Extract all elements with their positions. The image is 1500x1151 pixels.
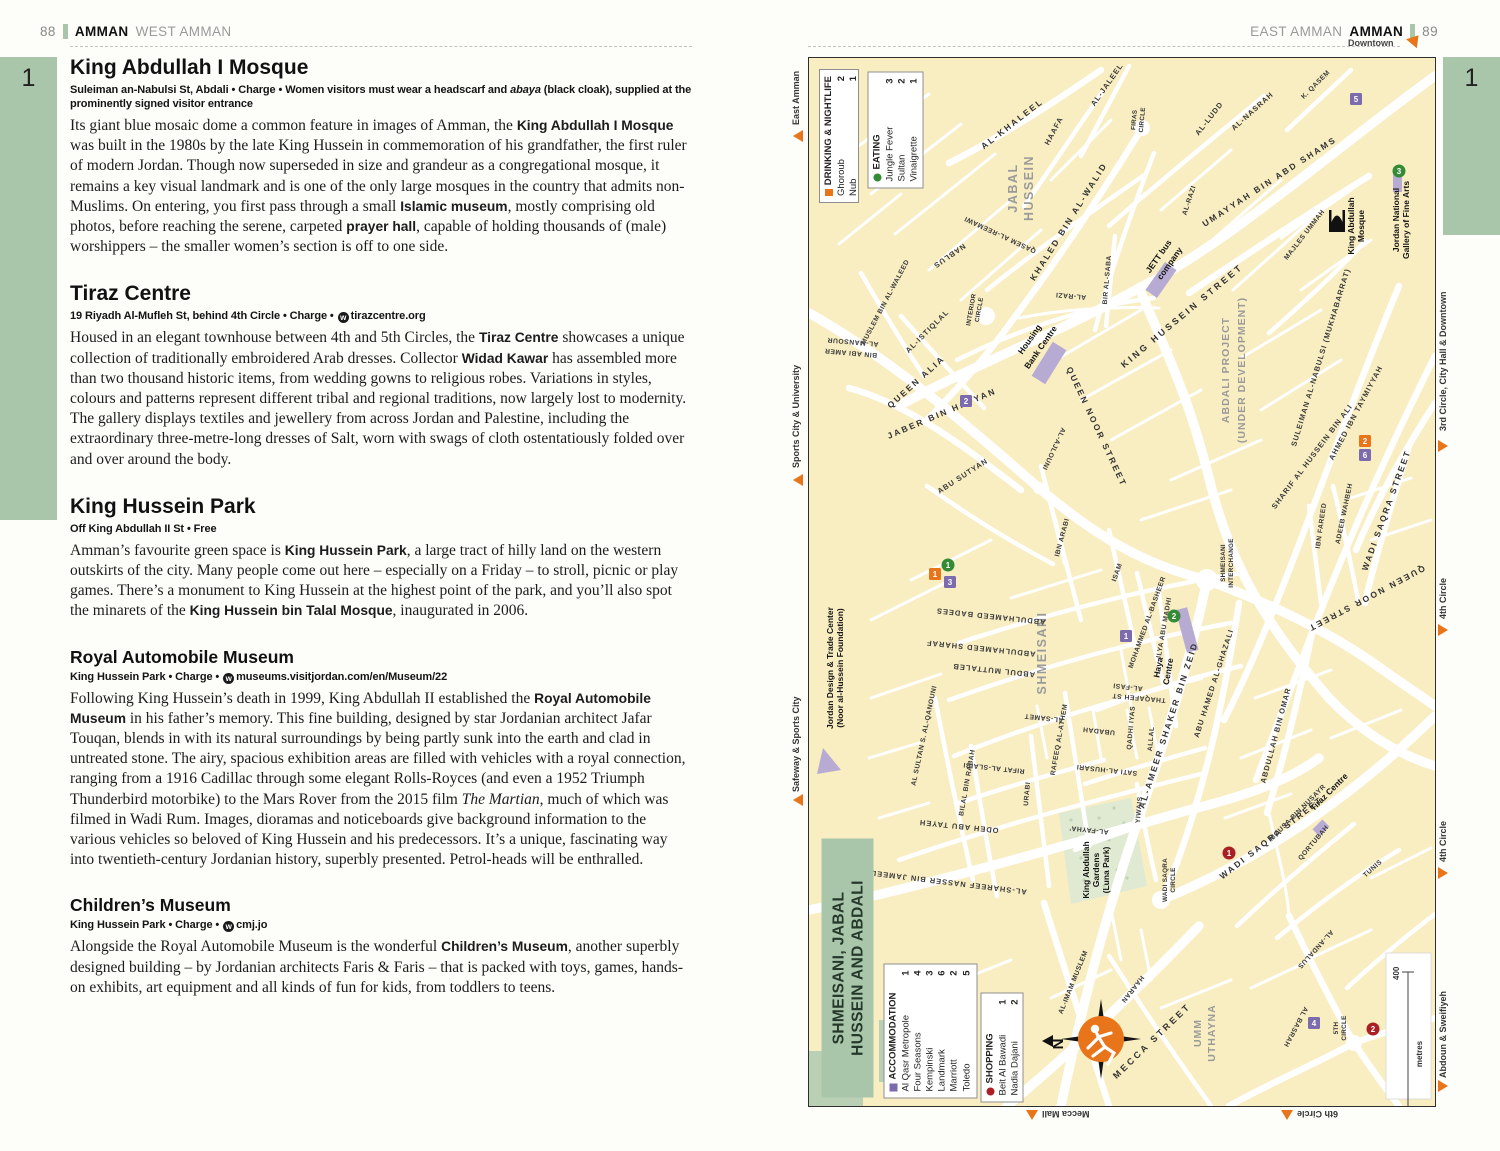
book-spread: 88 AMMAN WEST AMMAN EAST AMMAN AMMAN 89 … — [0, 0, 1500, 1151]
practical-info: King Hussein Park • Charge • wmuseums.vi… — [70, 670, 692, 684]
svg-text:1: 1 — [1227, 849, 1232, 858]
svg-text:Mosque: Mosque — [1356, 210, 1366, 242]
marker-eating: 1 — [942, 559, 955, 572]
drinking-swatch-icon — [825, 189, 833, 196]
article-heading: Royal Automobile Museum — [70, 647, 692, 668]
svg-text:400: 400 — [1392, 966, 1401, 980]
svg-text:4: 4 — [1312, 1019, 1317, 1028]
marker-accommodation: 5 — [1350, 93, 1362, 105]
direction-arrow-icon — [1438, 1080, 1448, 1092]
svg-text:(Luna Park): (Luna Park) — [1101, 846, 1111, 893]
marker-accommodation: 3 — [944, 576, 956, 588]
svg-text:Jordan Design & Trade Center: Jordan Design & Trade Center — [825, 606, 835, 729]
accommodation-swatch-icon — [890, 1084, 898, 1092]
svg-text:WADI SAQRA: WADI SAQRA — [1162, 858, 1169, 902]
legend-shopping: SHOPPING Beit Al Bawadi1 Nadia Dajani2 — [981, 993, 1024, 1103]
article-body: Amman’s favourite green space is King Hu… — [70, 541, 692, 622]
edge-label-east-amman: East Amman — [791, 68, 805, 128]
marker-accommodation: 4 — [1308, 1017, 1320, 1029]
article-heading: Tiraz Centre — [70, 282, 692, 306]
svg-text:1: 1 — [946, 561, 951, 570]
website-icon: w — [223, 921, 234, 932]
header-bar-icon — [63, 24, 68, 39]
article-body: Following King Hussein’s death in 1999, … — [70, 689, 692, 871]
website-icon: w — [223, 673, 234, 684]
svg-text:(Noor al-Hussein Foundation): (Noor al-Hussein Foundation) — [835, 608, 845, 728]
svg-text:2: 2 — [1371, 1025, 1376, 1034]
article-column: King Abdullah I Mosque Suleiman an-Nabul… — [70, 56, 692, 1023]
chapter-number: 1 — [1443, 64, 1500, 93]
chapter-number: 1 — [0, 64, 57, 93]
svg-text:UMM: UMM — [1192, 1019, 1204, 1047]
svg-text:3: 3 — [1397, 167, 1402, 176]
left-page-header: 88 AMMAN WEST AMMAN — [40, 24, 232, 39]
article-king-abdullah-mosque: King Abdullah I Mosque Suleiman an-Nabul… — [70, 56, 692, 257]
article-heading: King Abdullah I Mosque — [70, 56, 692, 80]
direction-arrow-icon — [793, 794, 803, 806]
practical-info: Suleiman an-Nabulsi St, Abdali • Charge … — [70, 83, 692, 111]
article-heading: King Hussein Park — [70, 495, 692, 519]
svg-text:INTERCHANGE: INTERCHANGE — [1228, 538, 1235, 587]
direction-arrow-icon — [793, 130, 803, 142]
marker-accommodation: 6 — [1359, 449, 1371, 461]
svg-text:SHMEISANI: SHMEISANI — [1220, 544, 1227, 582]
website-icon: w — [338, 312, 349, 323]
svg-text:Gallery of Fine Arts: Gallery of Fine Arts — [1401, 181, 1411, 259]
right-page-header: EAST AMMAN AMMAN 89 — [1150, 24, 1438, 39]
svg-text:UTHAYNA: UTHAYNA — [1206, 1004, 1218, 1061]
chapter-tab-right: 1 — [1443, 57, 1500, 235]
article-body: Its giant blue mosaic dome a common feat… — [70, 116, 692, 257]
direction-arrow-icon — [1438, 440, 1448, 452]
svg-text:JABAL: JABAL — [1006, 163, 1020, 212]
svg-text:Jordan National: Jordan National — [1391, 188, 1401, 252]
svg-text:(UNDER DEVELOPMENT): (UNDER DEVELOPMENT) — [1236, 297, 1248, 443]
article-king-hussein-park: King Hussein Park Off King Abdullah II S… — [70, 495, 692, 622]
marker-eating: 2 — [1168, 610, 1181, 623]
marker-shopping: 1 — [1223, 847, 1236, 860]
article-childrens-museum: Children’s Museum King Hussein Park • Ch… — [70, 895, 692, 998]
direction-arrow-icon — [1281, 1110, 1293, 1120]
marker-accommodation: 2 — [960, 395, 972, 407]
svg-text:2: 2 — [1363, 437, 1368, 446]
direction-arrow-icon — [1438, 867, 1448, 879]
edge-label-fourth-circle: 4th Circle — [1438, 575, 1452, 621]
svg-text:5: 5 — [1354, 95, 1359, 104]
svg-text:ABDALI PROJECT: ABDALI PROJECT — [1220, 317, 1232, 423]
svg-text:2: 2 — [1172, 612, 1177, 621]
svg-text:metres: metres — [1415, 1040, 1424, 1067]
practical-info: 19 Riyadh Al-Mufleh St, behind 4th Circl… — [70, 309, 692, 323]
edge-label-sixth-circle: 6th Circle — [1297, 1109, 1338, 1119]
marker-drinking: 2 — [1359, 435, 1371, 447]
map-canvas: JABAL HUSSEIN SHMEISANI UMM UTHAYNA ABDA… — [809, 58, 1435, 1106]
eating-swatch-icon — [874, 174, 882, 182]
svg-text:CIRCLE: CIRCLE — [1341, 1015, 1348, 1040]
edge-label-sports-city: Sports City & University — [791, 360, 805, 472]
svg-text:6: 6 — [1363, 451, 1368, 460]
marker-eating: 3 — [1393, 165, 1406, 178]
svg-text:HUSSEIN: HUSSEIN — [1022, 155, 1036, 221]
svg-text:1: 1 — [933, 570, 938, 579]
edge-label-downtown: Downtown — [1348, 38, 1394, 48]
article-body: Alongside the Royal Automobile Museum is… — [70, 937, 692, 998]
header-section: AMMAN — [75, 24, 129, 39]
svg-text:1: 1 — [1124, 632, 1129, 641]
legend-accommodation: ACCOMMODATION Al Qasr Metropole1 Four Se… — [884, 964, 978, 1099]
header-subsection: EAST AMMAN — [1250, 24, 1342, 39]
direction-arrow-icon — [793, 474, 803, 486]
header-rule — [70, 46, 692, 47]
marker-accommodation: 1 — [1120, 630, 1132, 642]
svg-text:5TH: 5TH — [1333, 1021, 1340, 1034]
svg-text:2: 2 — [964, 397, 969, 406]
page-number: 88 — [40, 24, 56, 39]
page-number: 89 — [1422, 24, 1438, 39]
article-tiraz-centre: Tiraz Centre 19 Riyadh Al-Mufleh St, beh… — [70, 282, 692, 469]
legend-drinking-nightlife: DRINKING & NIGHTLIFE Ghoroub2 Nub1 — [819, 69, 859, 203]
header-section: AMMAN — [1349, 24, 1403, 39]
direction-arrow-icon — [1026, 1110, 1038, 1120]
header-rule — [808, 46, 1400, 47]
svg-text:CIRCLE: CIRCLE — [1170, 867, 1177, 892]
marker-drinking: 1 — [929, 568, 941, 580]
shopping-swatch-icon — [987, 1088, 995, 1096]
map-title: SHMEISANI, JABAL HUSSEIN AND ABDALI — [822, 839, 874, 1098]
chapter-tab-left: 1 — [0, 57, 57, 520]
article-royal-automobile-museum: Royal Automobile Museum King Hussein Par… — [70, 647, 692, 871]
edge-label-abdoun: Abdoun & Sweifiyeh — [1438, 998, 1452, 1078]
svg-text:3: 3 — [948, 578, 953, 587]
svg-text:Gardens: Gardens — [1091, 852, 1101, 887]
article-heading: Children’s Museum — [70, 895, 692, 916]
marker-shopping: 2 — [1367, 1023, 1380, 1036]
scale-bar: 400 0 metres — [1386, 953, 1431, 1106]
edge-label-fourth-circle: 4th Circle — [1438, 818, 1452, 864]
legend-eating: EATING Jungle Fever3 Sultan2 Vinaigrette… — [868, 72, 924, 189]
svg-text:King Abdullah: King Abdullah — [1346, 197, 1356, 254]
city-map: JABAL HUSSEIN SHMEISANI UMM UTHAYNA ABDA… — [808, 57, 1436, 1107]
edge-label-third-circle: 3rd Circle, City Hall & Downtown — [1438, 286, 1452, 436]
edge-label-safeway: Safeway & Sports City — [791, 700, 805, 792]
practical-info: King Hussein Park • Charge • wcmj.jo — [70, 918, 692, 932]
direction-arrow-icon — [1438, 624, 1448, 636]
article-body: Housed in an elegant townhouse between 4… — [70, 328, 692, 469]
header-subsection: WEST AMMAN — [136, 24, 232, 39]
practical-info: Off King Abdullah II St • Free — [70, 522, 692, 536]
edge-label-mecca-mall: Mecca Mall — [1042, 1109, 1090, 1119]
svg-text:King Abdullah: King Abdullah — [1081, 841, 1091, 898]
